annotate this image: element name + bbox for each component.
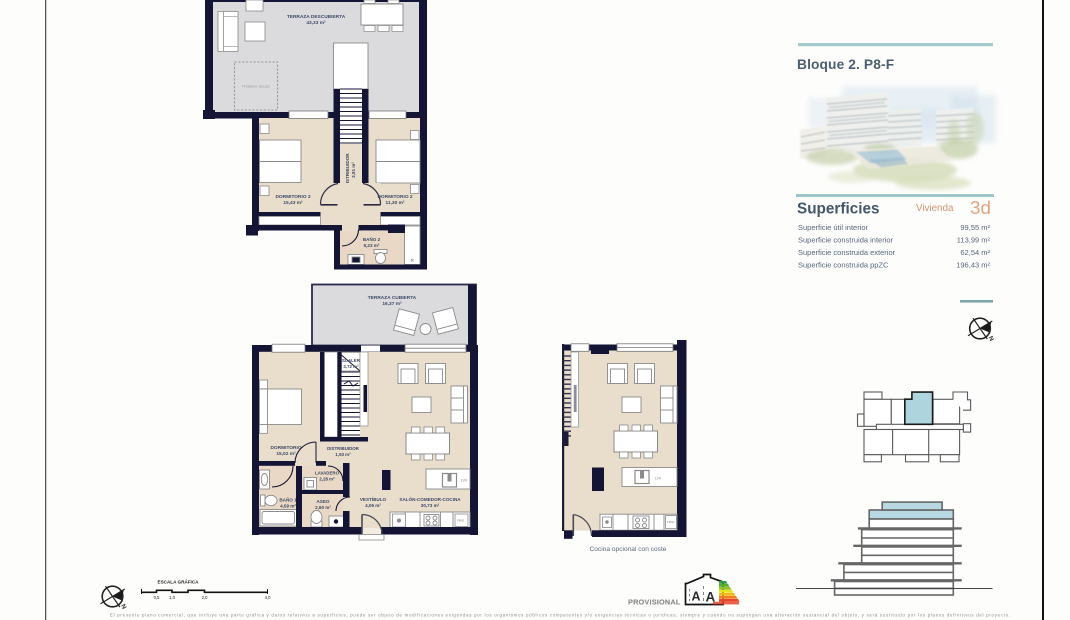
svg-text:Bloque 2. P8-F: Bloque 2. P8-F (797, 57, 894, 72)
svg-text:5,23 m²: 5,23 m² (364, 243, 380, 248)
svg-text:Superficie construida interior: Superficie construida interior (798, 236, 894, 245)
svg-text:2,0: 2,0 (202, 595, 208, 600)
svg-text:FRIG: FRIG (667, 520, 675, 524)
svg-text:El presente plano comercial, q: El presente plano comercial, que incluye… (110, 613, 1010, 618)
svg-text:TERRAZA DESCUBIERTA: TERRAZA DESCUBIERTA (287, 14, 346, 20)
svg-text:99,55 m²: 99,55 m² (960, 223, 990, 232)
svg-text:2,28 m²: 2,28 m² (319, 477, 335, 482)
svg-text:15,43 m²: 15,43 m² (283, 200, 303, 206)
svg-text:Vivienda: Vivienda (916, 203, 954, 214)
svg-text:Superficie construida ppZC: Superficie construida ppZC (798, 261, 889, 270)
svg-text:1,93 m²: 1,93 m² (335, 452, 351, 457)
svg-text:11,30 m²: 11,30 m² (386, 200, 405, 206)
svg-text:Previsión Jacuzzi: Previsión Jacuzzi (242, 85, 270, 89)
svg-text:BAÑO 2: BAÑO 2 (363, 236, 381, 242)
svg-text:Cocina opcional con coste: Cocina opcional con coste (590, 546, 667, 553)
svg-text:196,43 m²: 196,43 m² (956, 261, 990, 270)
svg-text:VESTÍBULO: VESTÍBULO (360, 495, 387, 502)
svg-text:DORMITORIO 2: DORMITORIO 2 (377, 194, 412, 200)
svg-text:SALÓN-COMEDOR-COCINA: SALÓN-COMEDOR-COCINA (399, 495, 461, 502)
svg-text:ASEO: ASEO (316, 499, 329, 504)
svg-text:ESCALA GRÁFICA: ESCALA GRÁFICA (158, 579, 200, 585)
svg-text:DISTRIBUIDOR: DISTRIBUIDOR (345, 153, 350, 187)
svg-text:DORMITORIO 3: DORMITORIO 3 (275, 194, 310, 200)
svg-text:Superficies: Superficies (797, 201, 879, 218)
svg-text:BAÑO 1: BAÑO 1 (279, 497, 297, 503)
svg-text:TERRAZA CUBIERTA: TERRAZA CUBIERTA (368, 295, 417, 301)
svg-text:62,54 m²: 62,54 m² (960, 248, 990, 257)
svg-text:3,72 m²: 3,72 m² (343, 364, 359, 369)
svg-text:DORMITORIO: DORMITORIO (270, 445, 301, 451)
svg-text:LVV: LVV (461, 479, 468, 483)
svg-text:113,99 m²: 113,99 m² (957, 236, 991, 245)
svg-text:15,02 m²: 15,02 m² (276, 451, 296, 457)
svg-text:3,91 m²: 3,91 m² (351, 162, 356, 178)
svg-text:LAVADERO: LAVADERO (315, 471, 340, 476)
svg-text:1,0: 1,0 (169, 595, 175, 600)
svg-text:A: A (692, 590, 701, 604)
svg-text:4,0: 4,0 (265, 595, 271, 600)
svg-text:DISTRIBUIDOR: DISTRIBUIDOR (327, 446, 360, 451)
svg-text:4,59 m²: 4,59 m² (280, 504, 296, 509)
svg-text:4,06 m²: 4,06 m² (365, 503, 381, 508)
svg-text:3d: 3d (970, 197, 991, 218)
svg-text:PROVISIONAL: PROVISIONAL (628, 598, 681, 607)
svg-text:30,73 m²: 30,73 m² (421, 503, 440, 508)
svg-text:LVV: LVV (655, 477, 662, 481)
svg-text:16,37 m²: 16,37 m² (382, 301, 402, 307)
svg-text:Superficie útil interior: Superficie útil interior (798, 223, 869, 232)
svg-text:43,33 m²: 43,33 m² (306, 20, 326, 26)
svg-text:0,5: 0,5 (154, 595, 160, 600)
svg-text:2,60 m²: 2,60 m² (315, 505, 331, 510)
svg-text:FRIG: FRIG (457, 519, 465, 523)
svg-text:Superficie construida exterior: Superficie construida exterior (798, 248, 896, 257)
